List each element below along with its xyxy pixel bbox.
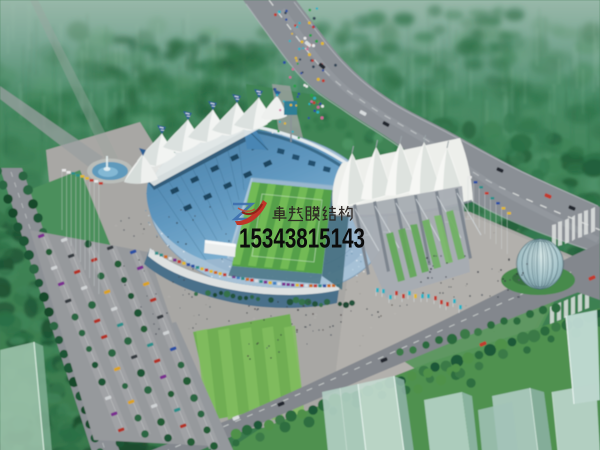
svg-text:15343815143: 15343815143 bbox=[239, 223, 365, 254]
